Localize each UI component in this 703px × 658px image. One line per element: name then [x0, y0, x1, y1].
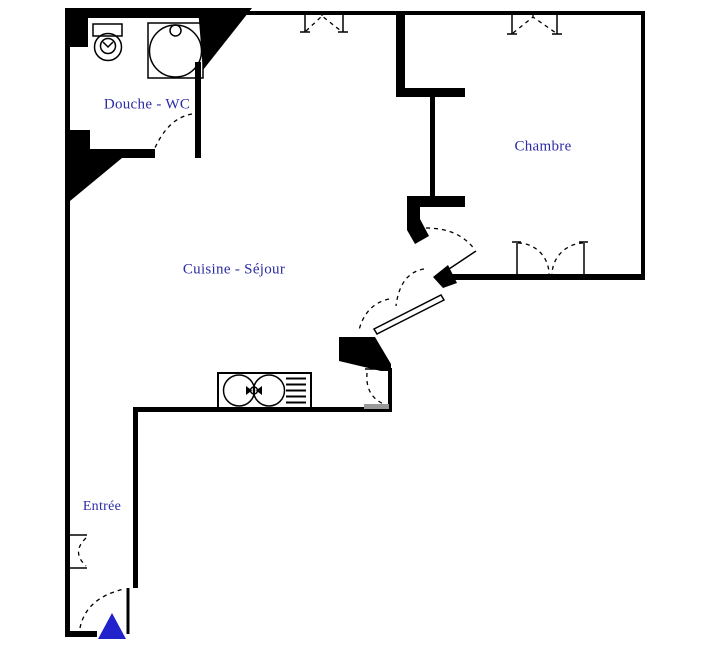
chambre-hall-door-leaf — [443, 251, 476, 273]
douche-right-wall — [195, 62, 201, 158]
douche-wc-door-arc — [154, 114, 192, 150]
entree-closet-door-arc — [79, 538, 87, 566]
room-label-cuisine-sejour: Cuisine - Séjour — [183, 262, 285, 279]
chambre-step-wall-top — [396, 88, 465, 97]
cuisine-diagonal-wall-chunk — [339, 337, 391, 371]
douche-bottom-wall — [65, 149, 155, 158]
top-wall-window-chambre — [507, 12, 562, 34]
diagonal-door-arc-right — [396, 269, 424, 306]
chambre-hall-door-arc — [426, 228, 475, 250]
room-label-entree: Entrée — [83, 499, 121, 515]
chambre-double-door — [512, 242, 588, 274]
chambre-left-wall-lower — [430, 97, 435, 197]
entrance-arrow — [98, 613, 126, 639]
room-label-chambre: Chambre — [514, 139, 571, 156]
kitchen-sink-cooktop-unit — [218, 373, 311, 408]
exterior-left-wall-thick — [65, 8, 88, 47]
douche-chamfer-wall — [198, 8, 252, 70]
cuisine-glazed-diagonal-door — [374, 295, 444, 334]
shower-tray — [148, 23, 203, 78]
diagonal-door-arc-left — [359, 299, 389, 330]
exterior-right-wall — [641, 11, 645, 279]
floor-plan: Douche - WC Chambre Cuisine - Séjour Ent… — [0, 0, 703, 658]
toilet — [93, 24, 122, 61]
exterior-bottom-wall — [65, 631, 97, 637]
chambre-left-wall-upper — [396, 11, 405, 97]
kitchen-service-door-arc — [367, 373, 386, 405]
drainer-lines — [286, 379, 306, 403]
kitchen-service-door-sill — [364, 404, 389, 409]
chambre-bottom-wall — [443, 274, 645, 280]
entree-right-wall — [133, 408, 138, 588]
hall-wall-wedge — [433, 265, 457, 288]
exterior-left-wall — [65, 8, 70, 637]
cuisine-chamfer-wall — [70, 158, 122, 201]
entrance-door-arc — [80, 589, 124, 628]
room-label-douche-wc: Douche - WC — [104, 97, 190, 114]
